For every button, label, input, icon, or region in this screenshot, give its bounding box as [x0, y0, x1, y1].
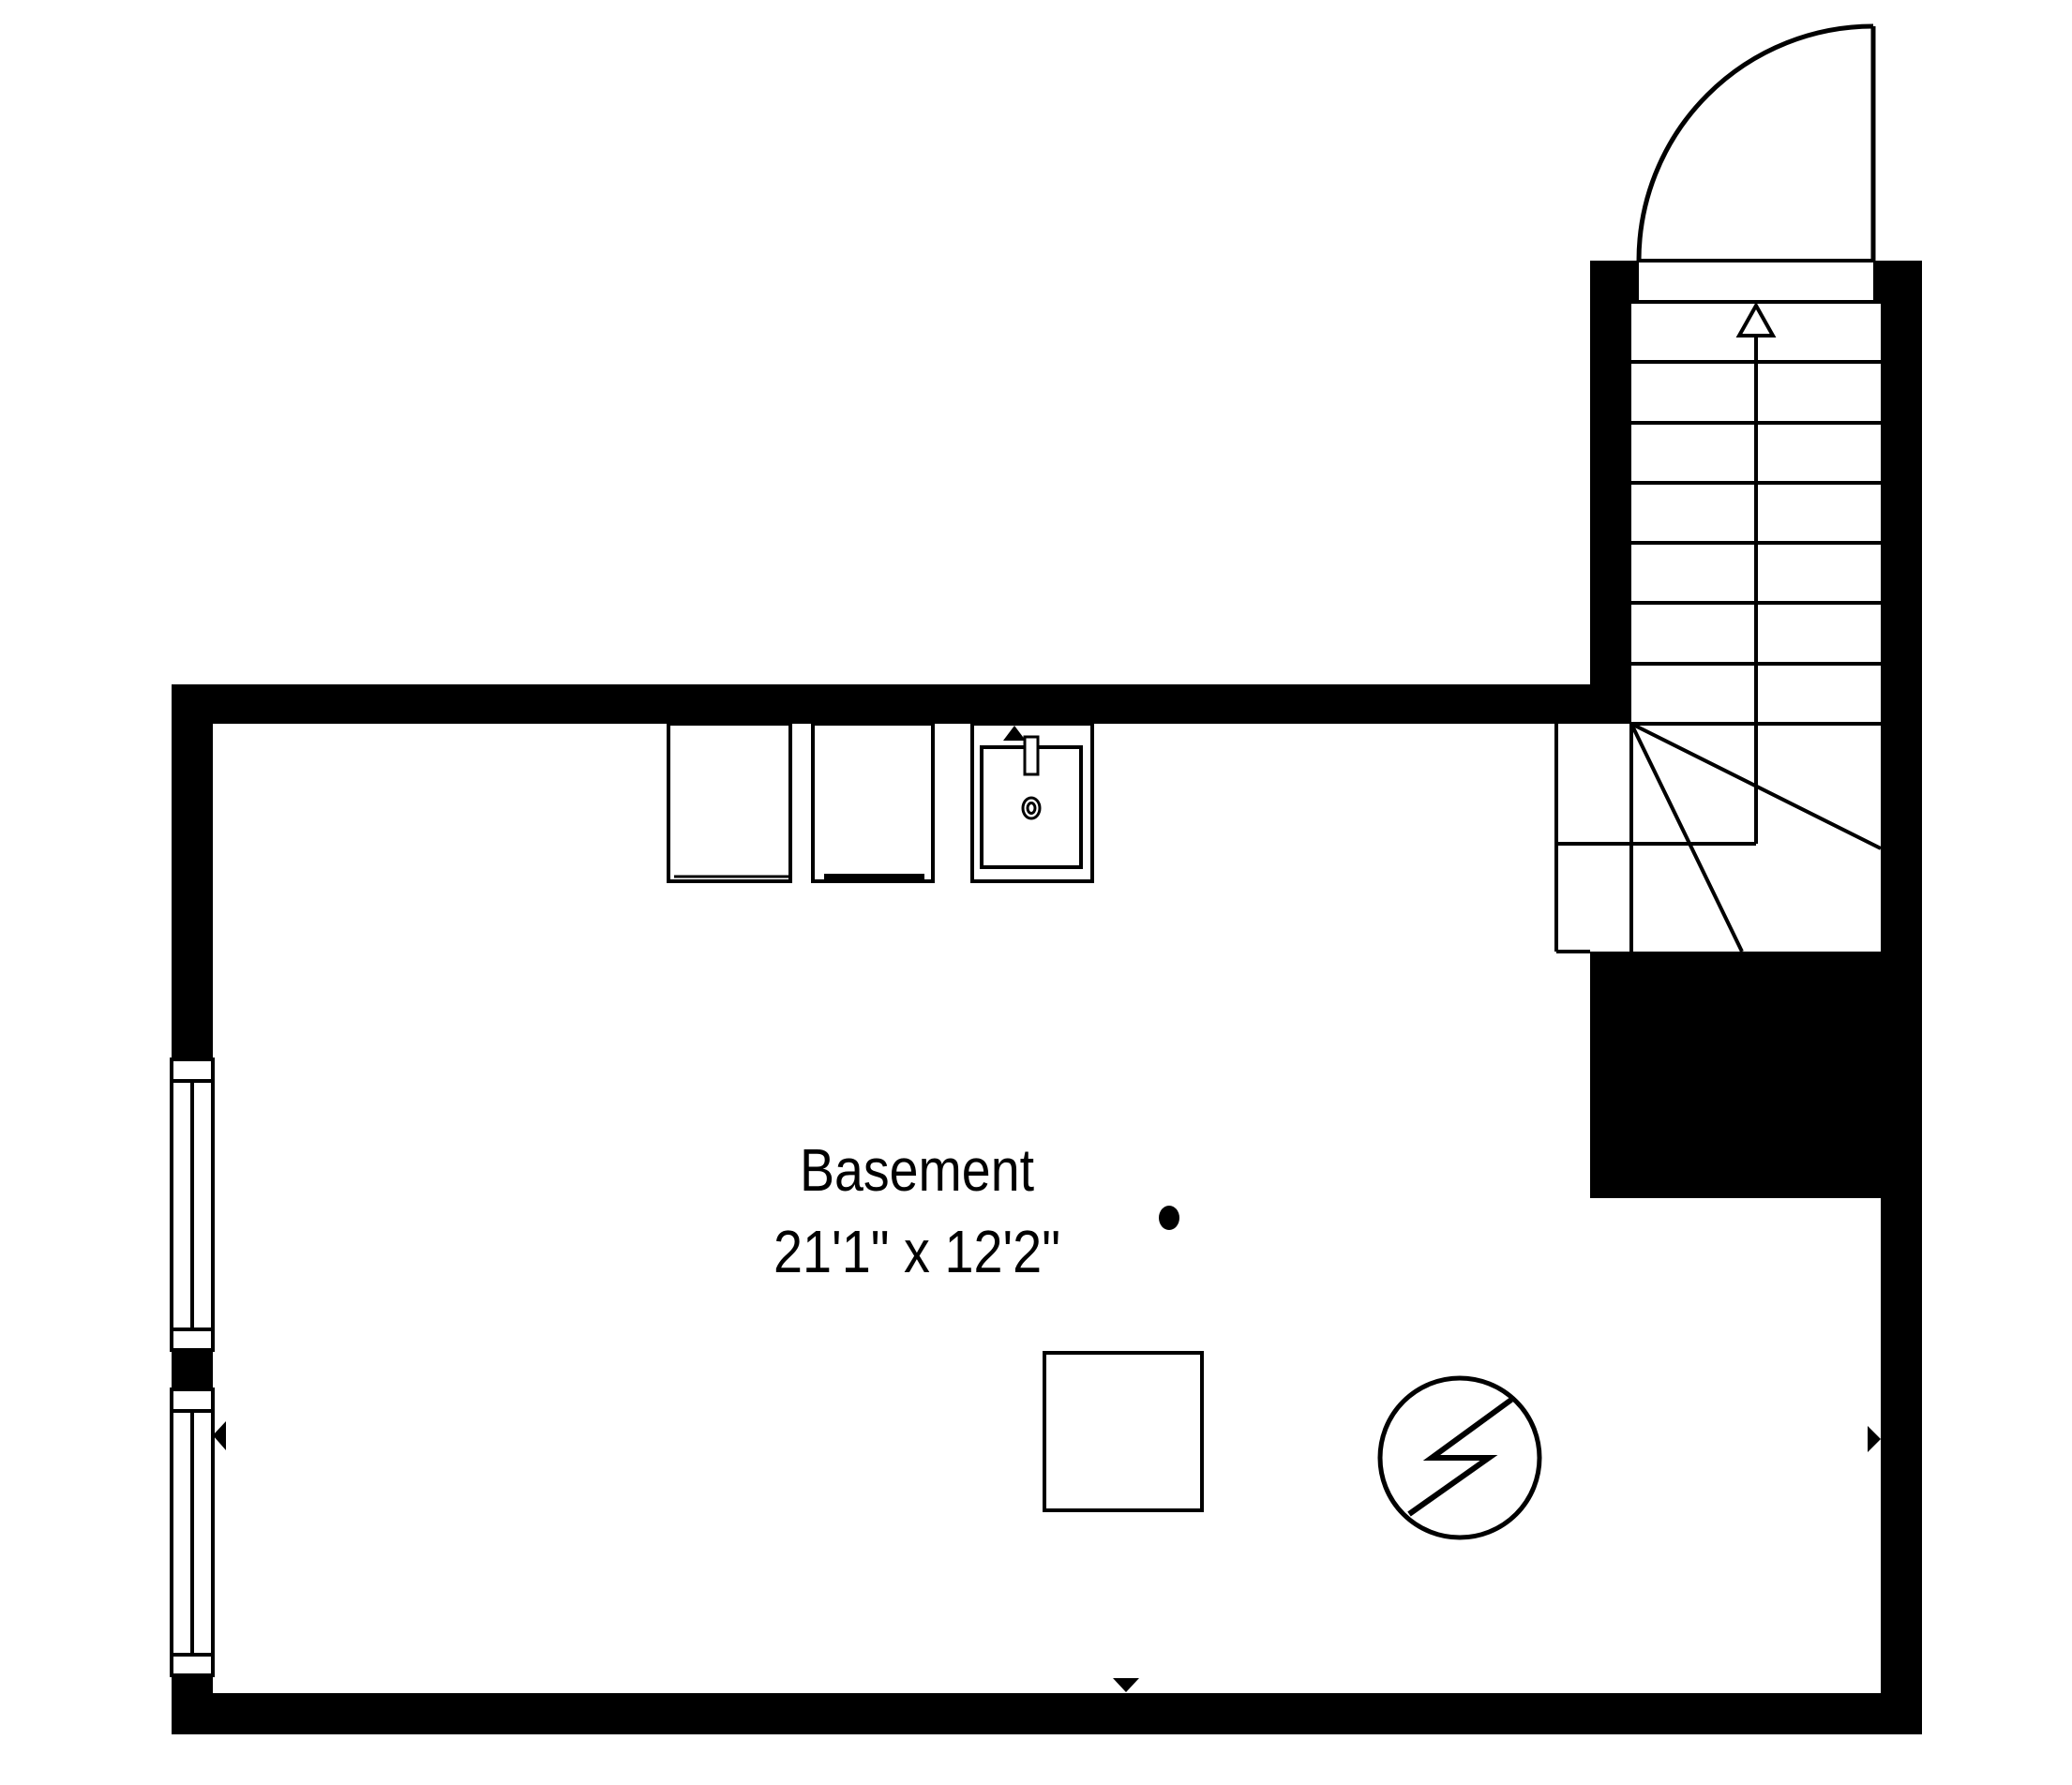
right-wall: [1881, 261, 1922, 1734]
room-dimensions: 21'1" x 12'2": [773, 1218, 1060, 1285]
sink-faucet-icon: [1025, 737, 1038, 774]
under-stair-solid-block: [1590, 952, 1881, 1198]
floor-dot: [1159, 1206, 1179, 1230]
stair-doorway-right-jamb: [1873, 261, 1922, 302]
appliance-2-handle-bar: [824, 874, 924, 882]
floorplan-page: Basement 21'1" x 12'2": [0, 0, 2072, 1785]
left-wall-between-windows: [172, 1350, 213, 1389]
stair-doorway-left-jamb: [1631, 261, 1639, 302]
basement-floorplan: Basement 21'1" x 12'2": [0, 0, 2072, 1785]
sink: [972, 724, 1092, 881]
fixtures: [668, 724, 1092, 882]
plan-background: [0, 0, 2072, 1785]
stair-left-wall: [1590, 261, 1631, 724]
bottom-wall: [172, 1693, 1922, 1734]
appliance-2: [813, 724, 933, 881]
left-wall-upper: [172, 684, 213, 1059]
support-square: [1044, 1353, 1202, 1510]
top-wall: [172, 684, 1631, 724]
room-name: Basement: [800, 1136, 1034, 1204]
appliance-1: [668, 724, 790, 881]
